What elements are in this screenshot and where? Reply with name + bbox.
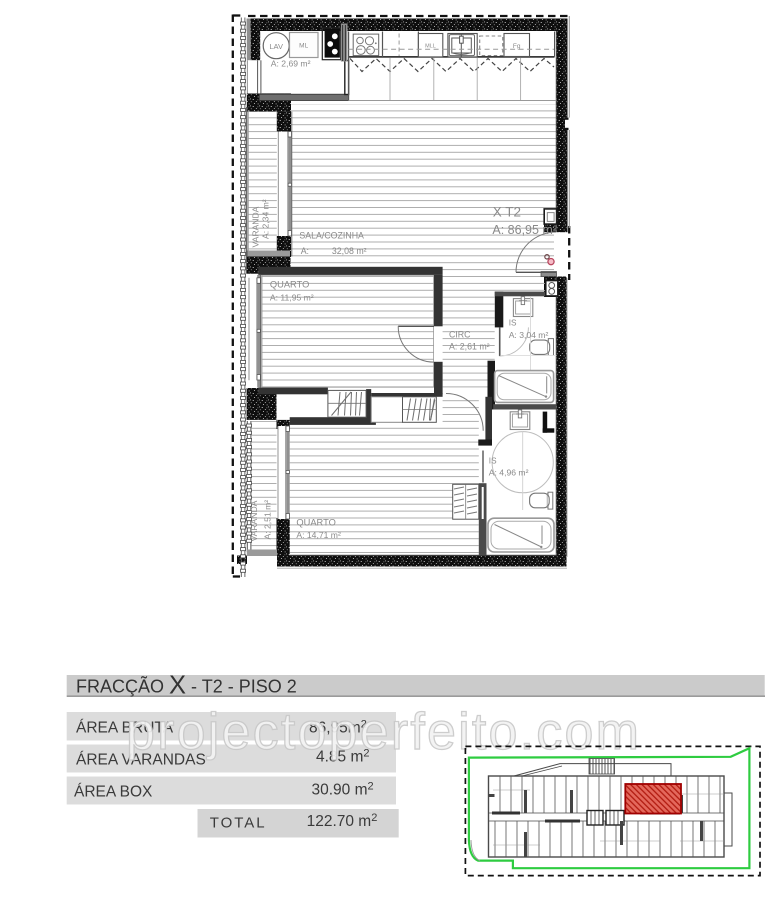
svg-text:A: 2,61 m²: A: 2,61 m² [449, 341, 490, 351]
svg-text:A:: A: [301, 246, 309, 256]
svg-text:X T2: X T2 [493, 205, 521, 220]
svg-text:A: 11,95 m²: A: 11,95 m² [270, 293, 314, 303]
svg-text:QUARTO: QUARTO [270, 280, 309, 290]
svg-text:ÁREA BOX: ÁREA BOX [74, 784, 153, 801]
svg-text:A: 2,69 m²: A: 2,69 m² [271, 59, 311, 69]
svg-text:TOTAL: TOTAL [210, 815, 267, 832]
svg-text:VARANDA: VARANDA [249, 500, 259, 541]
svg-text:MLL: MLL [425, 43, 436, 49]
svg-text:CIRC: CIRC [449, 330, 471, 340]
svg-text:SALA/COZINHA: SALA/COZINHA [299, 231, 364, 241]
svg-text:A: 2,34 m²: A: 2,34 m² [260, 199, 270, 239]
svg-text:ML: ML [299, 43, 308, 50]
svg-text:VARANDA: VARANDA [251, 206, 261, 247]
svg-text:A: 2,51 m²: A: 2,51 m² [262, 500, 272, 540]
svg-text:A: 86,95 m²: A: 86,95 m² [492, 223, 557, 237]
svg-text:LAV: LAV [269, 42, 283, 51]
svg-text:32,08 m²: 32,08 m² [332, 246, 367, 256]
svg-text:IS: IS [489, 457, 497, 466]
svg-text:FRACÇÃO X - T2 - PISO 2: FRACÇÃO X - T2 - PISO 2 [76, 672, 297, 700]
svg-text:122.70 m2: 122.70 m2 [307, 812, 378, 830]
svg-text:A: 14,71 m²: A: 14,71 m² [296, 530, 341, 540]
svg-text:A: 3,04 m²: A: 3,04 m² [509, 330, 549, 340]
svg-text:30.90 m2: 30.90 m2 [312, 781, 374, 799]
svg-text:IS: IS [509, 319, 517, 328]
svg-text:A: 4,96 m²: A: 4,96 m² [489, 468, 529, 478]
svg-text:projectoperfeito.com: projectoperfeito.com [126, 703, 641, 761]
svg-text:Fg: Fg [513, 43, 521, 50]
svg-text:QUARTO: QUARTO [296, 518, 335, 528]
